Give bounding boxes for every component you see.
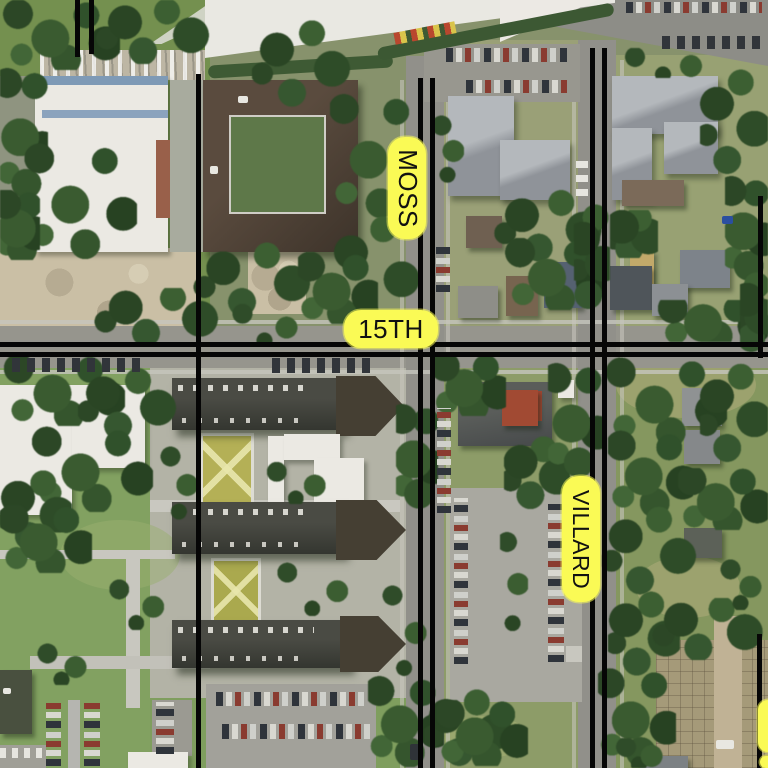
street-label-villard-text: VILLARD — [568, 489, 595, 588]
street-label-partial-edge — [760, 756, 768, 768]
tree-cluster — [0, 505, 92, 573]
parked-cars-column — [454, 498, 468, 664]
parked-cars-row — [0, 748, 46, 758]
street-line-vertical — [196, 74, 201, 768]
parked-cars-row — [216, 692, 366, 706]
tree-cluster — [253, 458, 348, 504]
house — [610, 266, 652, 310]
street-line-villard-west — [590, 48, 595, 768]
street-label-partial-edge — [758, 700, 768, 752]
tree-cluster — [434, 354, 506, 416]
street-label-moss-text: MOSS — [392, 149, 423, 228]
street-line-moss-east — [430, 78, 435, 768]
parking-island-trees — [500, 500, 528, 640]
tree-cluster — [378, 558, 436, 683]
parked-cars-column — [576, 160, 588, 196]
parked-cars-row — [626, 2, 762, 13]
tree-cluster — [436, 700, 528, 766]
tree-cluster — [610, 738, 674, 768]
tree-cluster — [92, 288, 227, 344]
sand-court — [211, 558, 261, 624]
tree-cluster — [256, 554, 381, 616]
parked-cars-row — [222, 724, 374, 739]
service-path — [68, 700, 80, 768]
tree-cluster — [0, 190, 40, 260]
dormer-windows — [182, 656, 310, 661]
tree-cluster — [215, 300, 325, 346]
tree-cluster — [548, 352, 604, 482]
parked-car — [722, 216, 733, 224]
parked-cars-row — [12, 358, 144, 372]
parked-cars-column — [437, 408, 451, 513]
aerial-map-canvas[interactable]: MOSS 15TH VILLARD — [0, 0, 768, 768]
lot-driveway — [566, 646, 582, 662]
street-line-vertical — [89, 0, 94, 54]
house — [680, 250, 730, 288]
parked-car — [716, 740, 734, 749]
tree-cluster — [98, 572, 183, 630]
parked-cars-column — [156, 702, 174, 754]
tree-cluster — [610, 210, 658, 258]
building-dark-small — [0, 670, 32, 734]
tree-cluster — [95, 0, 215, 64]
sand-court — [200, 433, 254, 505]
building-blue-edge — [35, 76, 168, 85]
street-label-villard: VILLARD — [562, 476, 600, 602]
tree-cluster — [434, 100, 464, 185]
tree-cluster — [700, 60, 768, 185]
parked-cars-column — [46, 702, 61, 766]
rooftop-unit — [238, 96, 248, 103]
tree-cluster — [30, 640, 100, 685]
house-red — [502, 390, 538, 426]
street-line-15th-south — [0, 352, 768, 357]
street-label-15th: 15TH — [344, 310, 438, 348]
parked-cars-column — [84, 702, 100, 766]
street-line-vertical — [75, 0, 80, 57]
tree-cluster — [678, 468, 768, 530]
building-brown-low — [622, 180, 684, 206]
parked-cars-column — [436, 244, 450, 292]
building-inner-courtyard — [229, 115, 326, 214]
parked-cars-row — [446, 48, 570, 62]
rooftop-unit — [3, 688, 11, 694]
parked-cars-row — [466, 80, 570, 93]
building-white-small — [128, 752, 188, 768]
street-label-moss: MOSS — [388, 137, 426, 239]
street-line-vertical — [758, 196, 763, 358]
street-line-villard-east — [602, 48, 607, 768]
building-white-bar — [284, 434, 340, 460]
house — [458, 286, 498, 318]
tree-cluster — [700, 356, 768, 471]
parked-cars-row — [662, 36, 766, 49]
parked-cars-row — [272, 358, 372, 373]
tree-cluster — [718, 552, 768, 610]
building-blue-edge — [42, 110, 168, 118]
street-label-15th-text: 15TH — [358, 314, 424, 345]
rooftop-unit — [210, 166, 218, 174]
